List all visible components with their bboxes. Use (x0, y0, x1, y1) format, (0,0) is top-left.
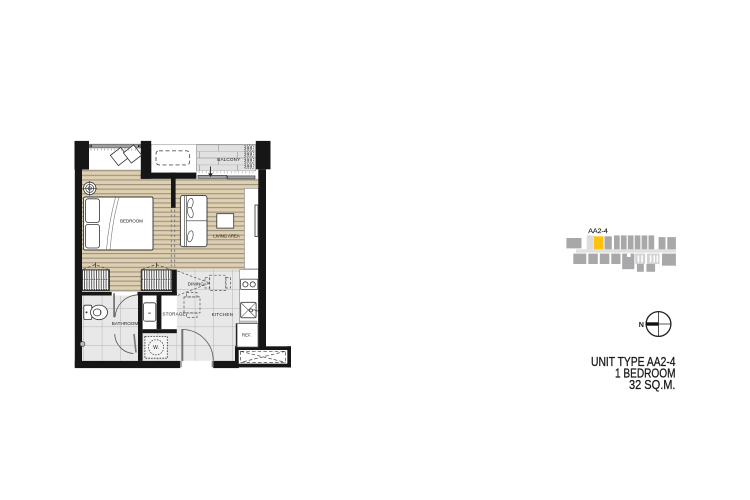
svg-text:BATHROOM: BATHROOM (112, 321, 139, 326)
svg-text:W.: W. (153, 345, 159, 351)
svg-text:▬: ▬ (148, 312, 151, 315)
svg-text:LIVING AREA: LIVING AREA (213, 234, 240, 239)
svg-text:BALCONY: BALCONY (217, 157, 240, 162)
svg-text:32 SQ.M.: 32 SQ.M. (629, 378, 676, 392)
svg-text:BEDROOM: BEDROOM (120, 218, 143, 223)
svg-text:AA2-4: AA2-4 (588, 228, 608, 235)
svg-text:REF.: REF. (242, 333, 252, 338)
svg-text:DINING: DINING (188, 282, 205, 287)
svg-text:KITCHEN: KITCHEN (212, 312, 233, 317)
svg-text:STORAGE: STORAGE (162, 311, 185, 316)
svg-text:N: N (639, 320, 644, 329)
